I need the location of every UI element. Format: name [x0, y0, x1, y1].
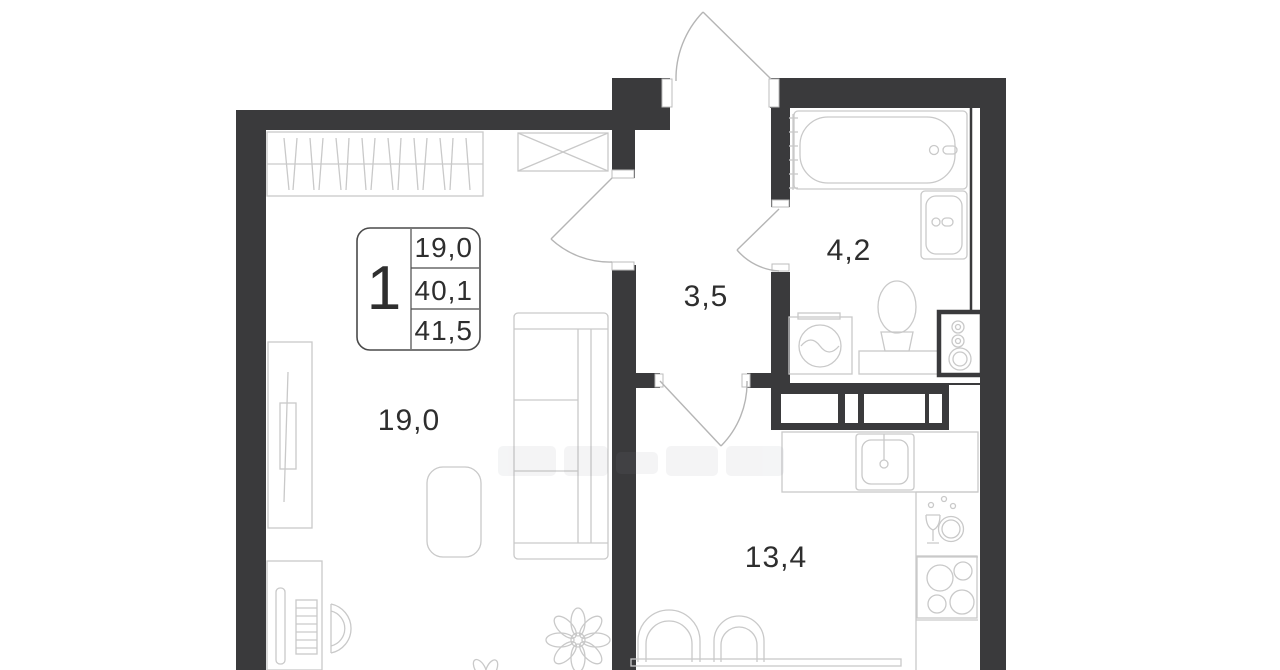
desk-with-computer-icon [267, 561, 322, 670]
bathroom-door-icon [737, 209, 779, 271]
badge-area-2: 40,1 [415, 275, 474, 306]
bathtub-icon [794, 111, 967, 189]
bathroom-sink-icon [921, 191, 967, 259]
kitchen-label: 13,4 [745, 541, 807, 574]
entrance-door-icon [676, 12, 771, 81]
living-room-door-icon [551, 178, 612, 262]
armchair-icon [427, 467, 481, 557]
floor-plan-canvas: 1 19,0 40,1 41,5 19,0 3,5 4,2 13,4 [0, 0, 1280, 670]
dining-table-icon [631, 659, 901, 666]
kitchen-door-icon [660, 381, 747, 446]
stove-hob-icon [917, 556, 977, 618]
living-room-label: 19,0 [378, 404, 440, 437]
wardrobe-with-hangers-icon [267, 132, 483, 196]
watermark [498, 446, 784, 476]
utility-riser-icon [939, 312, 982, 375]
desk-chair-icon [331, 604, 351, 653]
unit-info-badge: 1 19,0 40,1 41,5 [357, 228, 480, 350]
badge-area-1: 19,0 [415, 232, 474, 263]
tv-console-icon [268, 342, 312, 528]
badge-rooms-count: 1 [367, 254, 401, 323]
hallway-label: 3,5 [684, 280, 729, 313]
dishwasher-area-icon [926, 497, 964, 544]
bathroom-label: 4,2 [827, 234, 872, 267]
crossed-storage-cabinet-icon [518, 133, 608, 171]
sofa-icon [514, 313, 608, 559]
towel-rail-icon [789, 114, 798, 190]
dining-chairs-icon [638, 610, 764, 662]
floor-plan: 1 19,0 40,1 41,5 19,0 3,5 4,2 13,4 [0, 0, 1280, 670]
plant-icon [546, 608, 610, 670]
toilet-icon [859, 281, 940, 374]
kitchen-sink-icon [856, 434, 914, 490]
kitchen-counter [782, 432, 978, 670]
washing-machine-icon [789, 313, 852, 374]
small-plant-icon [471, 657, 501, 670]
badge-area-3: 41,5 [415, 315, 474, 346]
